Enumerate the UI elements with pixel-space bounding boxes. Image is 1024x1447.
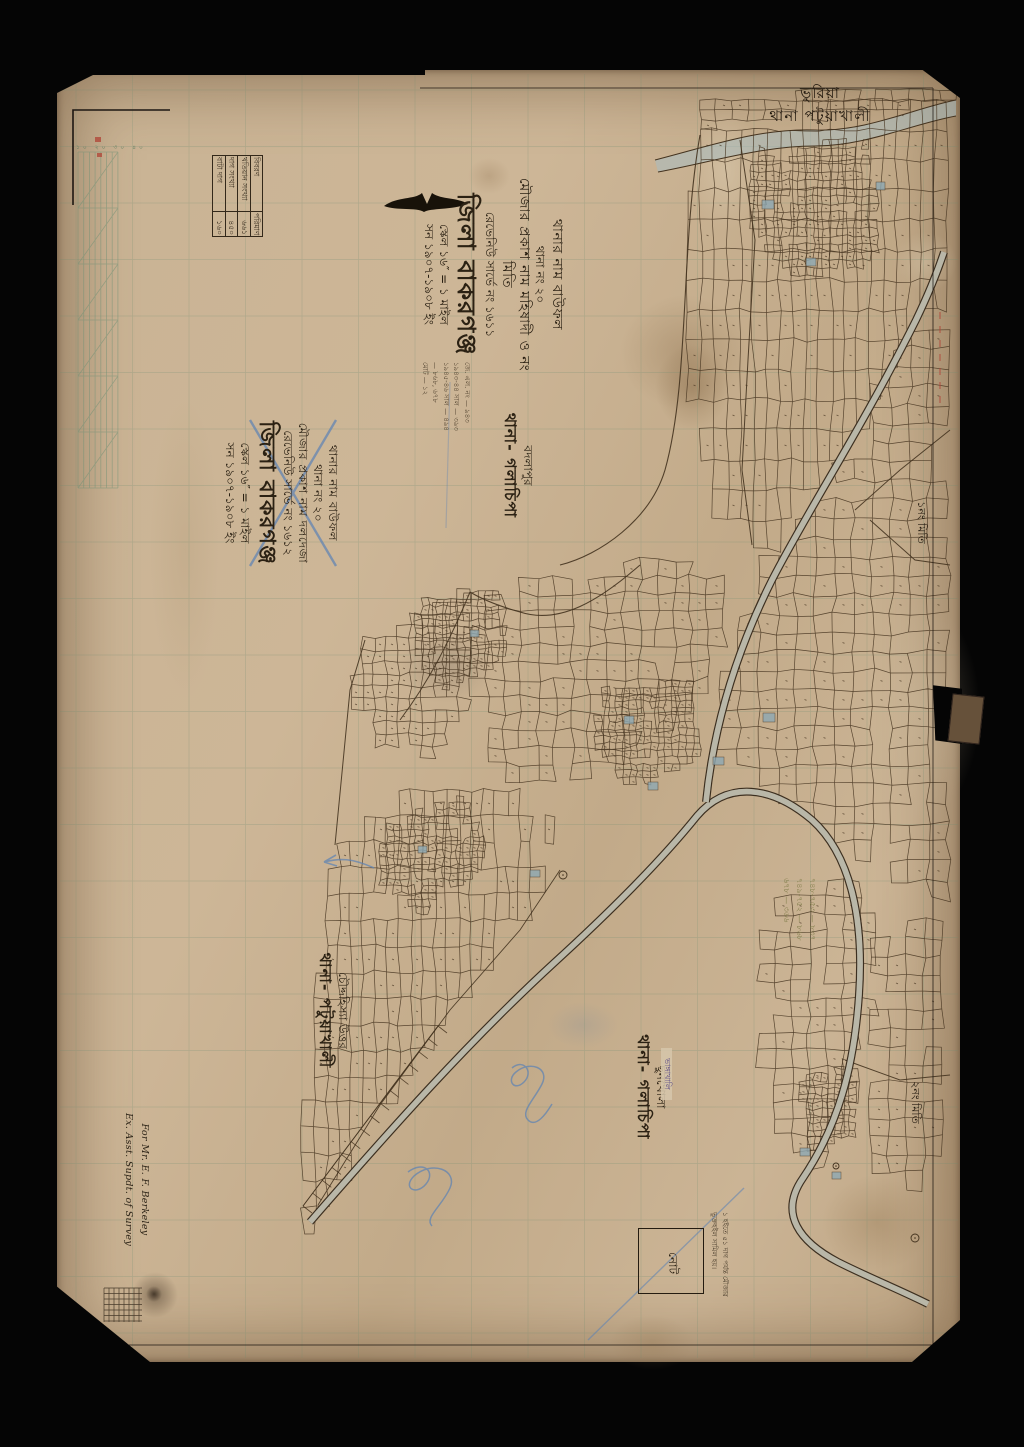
note-line: মোট — ১২ (420, 362, 431, 527)
label-miti-2: ২নং মিতি (908, 1075, 922, 1130)
pencil-line: ৬৭৮ — ৩৬৬ (780, 878, 793, 983)
purple-stamp-label: ভাঙ্গাখালি (661, 1048, 672, 1100)
note-box-label: নোট (665, 1248, 680, 1278)
thana-name: থানা- গলাচিপা (633, 1022, 653, 1152)
legend-row: দাগ সংখ্যা ৪৫০ (226, 156, 238, 236)
legend-header-qty: পরিমাণ (251, 212, 262, 236)
legend-row: বাটা দাগ ১৬০ (214, 156, 226, 236)
note-line: জে. এল. নং — ৯৪৩ (462, 362, 473, 527)
label-badlapur: বদলাপুর থানা- গলাচিপা (500, 398, 535, 533)
legend-table: বিবরণ পরিমাণ খতিয়ান সংখ্যা ৬৬১ দাগ সংখ্… (213, 155, 264, 237)
note-line: — ৮৬৮, ৬৭৮ (430, 362, 441, 527)
dedication-line1: For Mr. E. F. Berkeley (136, 1112, 152, 1247)
title-thana-name: থানার নাম বাউফল (548, 162, 566, 387)
crossed-scale: স্কেল ১৬″ = ১ মাইল (238, 408, 253, 578)
thana-name: থানা- পটুয়াখালী (315, 948, 335, 1073)
note-line: ১৯৪৩-৪৪ সাল — ৩৯৩ (451, 362, 462, 527)
header-line1: ভুরিয়া (720, 82, 920, 105)
pencil-calculations: ৭৪৮-৭৫৩ — ৮৩৭ ৭৪৯-৭৫২ — ৮৬৮ ৬৭৮ — ৩৬৬ (780, 878, 818, 983)
note-line: ১ হইতে ৫১ দাগ পর্যন্ত মৌজার (719, 1212, 730, 1322)
dedication: For Mr. E. F. Berkeley Ex. Asst. Supdt. … (120, 1112, 152, 1247)
crossed-thana-no: থানা নং ২০ (310, 408, 325, 578)
crossed-mouza-name: মৌজার প্রকাশ নাম দলদেজা (295, 408, 310, 578)
title-year: সন ১৯০৭-১৯০৮ ইং (421, 162, 436, 387)
label-chauddahissa: চৌদ্দহিস্যা উত্তর থানা- পটুয়াখালী (315, 948, 350, 1073)
note-line: ভুক্তহইল সামিল হয়। (708, 1212, 719, 1322)
title-block-main: থানার নাম বাউফল থানা নং ২০ মৌজার প্রকাশ … (421, 162, 565, 387)
paper-tab (948, 693, 985, 744)
legend-header-row: বিবরণ পরিমাণ (251, 156, 262, 236)
thana-name: থানা- গলাচিপা (500, 398, 520, 533)
sheet-header: ভুরিয়া থানা পটুয়াখালী (720, 82, 920, 127)
diagonal-scale-numbers: ১০ ২০ ৩০ ৪০ (76, 142, 146, 153)
note-line: ১৯৪৫-৪৬ সাল — ৪৯৪ (441, 362, 452, 527)
title-scale: স্কেল ১৬″ = ১ মাইল (436, 162, 451, 387)
pencil-line: ৭৪৮-৭৫৩ — ৮৩৭ (805, 878, 818, 983)
place-name: বদলাপুর (520, 398, 535, 533)
place-name: চৌদ্দহিস্যা উত্তর (335, 948, 350, 1073)
crossed-district: জিলা বাকরগঞ্জ (253, 408, 281, 578)
label-miti-1: ১নং মিতি (914, 495, 928, 550)
crossed-year: সন ১৯০৭-১৯০৮ ইং (223, 408, 238, 578)
legend-row: খতিয়ান সংখ্যা ৬৬১ (238, 156, 250, 236)
note-box-annotation: ১ হইতে ৫১ দাগ পর্যন্ত মৌজার ভুক্তহইল সাম… (708, 1212, 730, 1322)
pencil-line: ৭৪৯-৭৫২ — ৮৬৮ (792, 878, 805, 983)
title-district: জিলা বাকরগঞ্জ (451, 162, 482, 387)
title-mouza-name: মৌজার প্রকাশ নাম মহিষাদী ও নং মিতি (498, 162, 533, 387)
title-survey-no: রেভেনিউ সার্ভে নং ১৬১১ (483, 162, 498, 387)
scanned-map-sheet: ভুরিয়া থানা পটুয়াখালী থানার নাম বাউফল … (0, 0, 1024, 1447)
dedication-line2: Ex. Asst. Supdt. of Survey (120, 1112, 136, 1247)
crossed-thana-name: থানার নাম বাউফল (325, 408, 340, 578)
header-line2: থানা পটুয়াখালী (720, 105, 920, 128)
crossed-survey-no: রেভেনিউ সার্ভে নং ১৬১২ (280, 408, 295, 578)
legend-header-desc: বিবরণ (251, 156, 262, 212)
title-thana-no: থানা নং ২০ (533, 162, 548, 387)
scan-edge (55, 68, 425, 75)
survey-notes: জে. এল. নং — ৯৪৩ ১৯৪৩-৪৪ সাল — ৩৯৩ ১৯৪৫-… (420, 362, 473, 527)
title-block-crossed: থানার নাম বাউফল থানা নং ২০ মৌজার প্রকাশ … (223, 408, 341, 578)
